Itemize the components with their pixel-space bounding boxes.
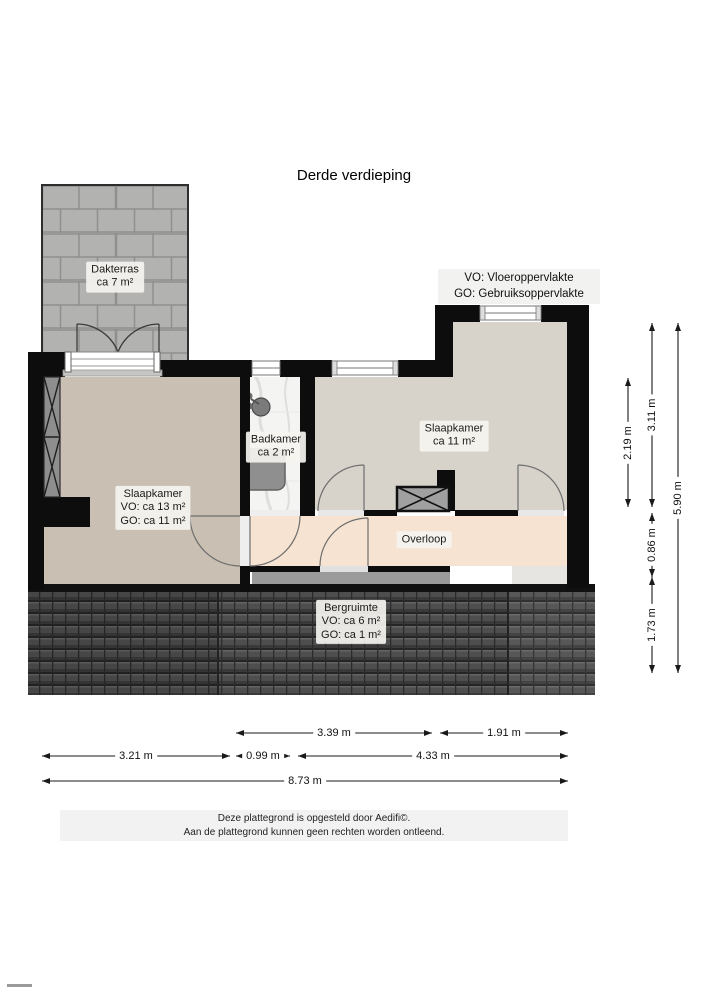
- disclaimer: Deze plattegrond is opgesteld door Aedif…: [60, 810, 568, 841]
- dakterras-label: Dakterras ca 7 m²: [86, 262, 144, 293]
- dim-top-mid: 3.39 m: [313, 727, 355, 739]
- floorplan-drawing: [0, 0, 708, 1000]
- bedroom-left-floor: [44, 377, 240, 586]
- stair-landing: [450, 566, 512, 586]
- disclaimer-line1: Deze plattegrond is opgesteld door Aedif…: [64, 812, 564, 826]
- bedroom-right-name: Slaapkamer: [425, 423, 484, 436]
- terrace-door-frame: [63, 352, 162, 376]
- dim-total-width: 8.73 m: [284, 775, 326, 787]
- dim-mid-right: 4.33 m: [412, 750, 454, 762]
- dim-upper-height: 3.11 m: [646, 395, 658, 436]
- fine-print: [7, 984, 32, 987]
- dim-top-right: 1.91 m: [483, 727, 525, 739]
- dim-small-height: 0.86 m: [646, 524, 658, 566]
- stair-top: [512, 566, 567, 586]
- bedroom-left-name: Slaapkamer: [120, 488, 185, 501]
- storage-name: Bergruimte: [321, 602, 381, 615]
- dim-mid-center: 0.99 m: [242, 750, 284, 762]
- dim-total-height: 5.90 m: [672, 477, 684, 519]
- bedroom-right-area: ca 11 m²: [425, 436, 484, 449]
- skylight-window: [44, 377, 60, 497]
- storage-go: GO: ca 1 m²: [321, 629, 381, 642]
- window-topright: [480, 306, 541, 320]
- window-left: [332, 361, 398, 375]
- dakterras-area: ca 7 m²: [91, 277, 139, 290]
- hallway-label: Overloop: [397, 531, 452, 548]
- bedroom-left-go: GO: ca 11 m²: [120, 515, 185, 528]
- small-window: [252, 361, 280, 375]
- bedroom-left-vo: VO: ca 13 m²: [120, 501, 185, 514]
- shaft-icon: [397, 487, 449, 511]
- dim-mid-left: 3.21 m: [115, 750, 157, 762]
- bathroom-label: Badkamer ca 2 m²: [246, 432, 306, 463]
- storage-roof: [28, 584, 595, 695]
- disclaimer-line2: Aan de plattegrond kunnen geen rechten w…: [64, 826, 564, 840]
- bathroom-area: ca 2 m²: [251, 447, 301, 460]
- hallway-name: Overloop: [402, 533, 447, 546]
- floorplan-page: Derde verdieping VO: Vloeroppervlakte GO…: [0, 0, 708, 1000]
- bedroom-right-label: Slaapkamer ca 11 m²: [420, 421, 489, 452]
- bedroom-left-label: Slaapkamer VO: ca 13 m² GO: ca 11 m²: [115, 486, 190, 530]
- storage-label: Bergruimte VO: ca 6 m² GO: ca 1 m²: [316, 600, 386, 644]
- dim-lower-height: 1.73 m: [646, 604, 658, 646]
- dim-inner-height: 2.19 m: [622, 422, 634, 464]
- storage-vo: VO: ca 6 m²: [321, 615, 381, 628]
- storage-access-floor: [252, 572, 450, 586]
- dakterras-name: Dakterras: [91, 264, 139, 277]
- bathroom-name: Badkamer: [251, 434, 301, 447]
